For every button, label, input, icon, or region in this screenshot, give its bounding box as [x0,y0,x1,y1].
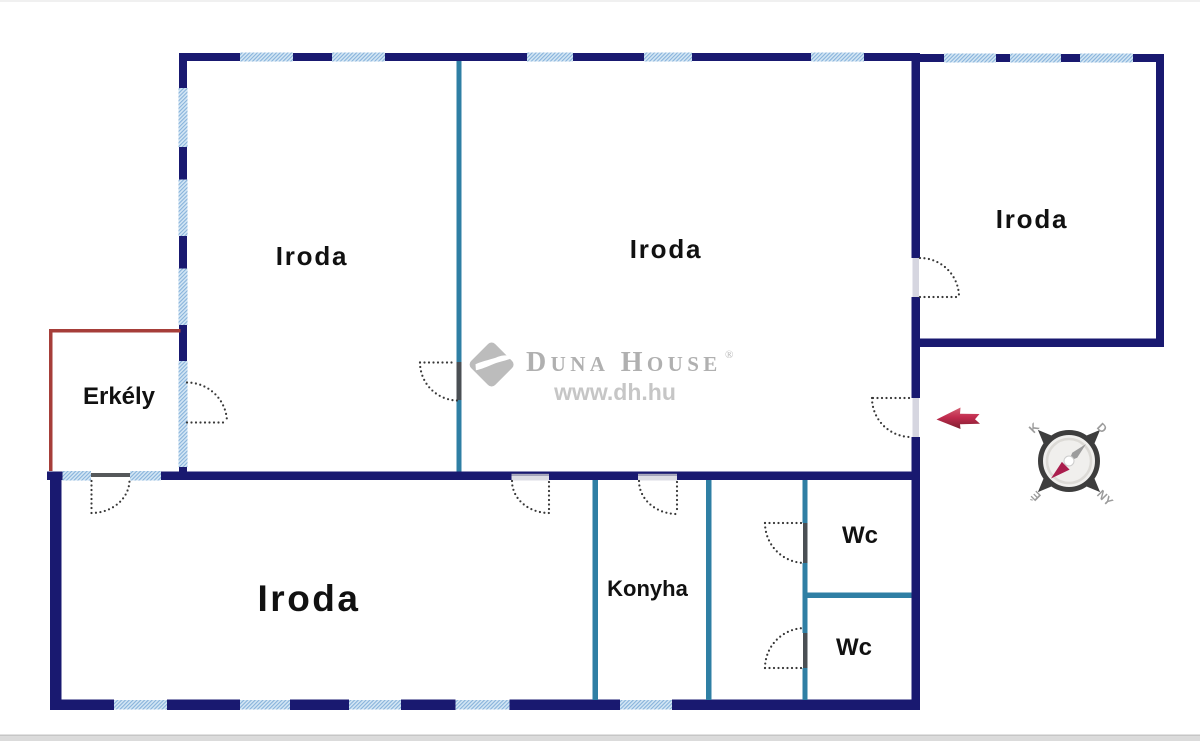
svg-text:Iroda: Iroda [276,241,349,271]
svg-text:Erkély: Erkély [83,383,156,410]
svg-text:®: ® [725,349,733,361]
svg-text:Konyha: Konyha [607,576,688,601]
svg-text:DUNA HOUSE: DUNA HOUSE [526,347,722,378]
svg-text:Iroda: Iroda [630,234,703,264]
svg-text:Iroda: Iroda [258,578,361,619]
svg-text:Iroda: Iroda [996,204,1069,234]
svg-text:www.dh.hu: www.dh.hu [553,379,676,405]
svg-text:Wc: Wc [842,522,878,549]
svg-text:Wc: Wc [836,634,872,661]
